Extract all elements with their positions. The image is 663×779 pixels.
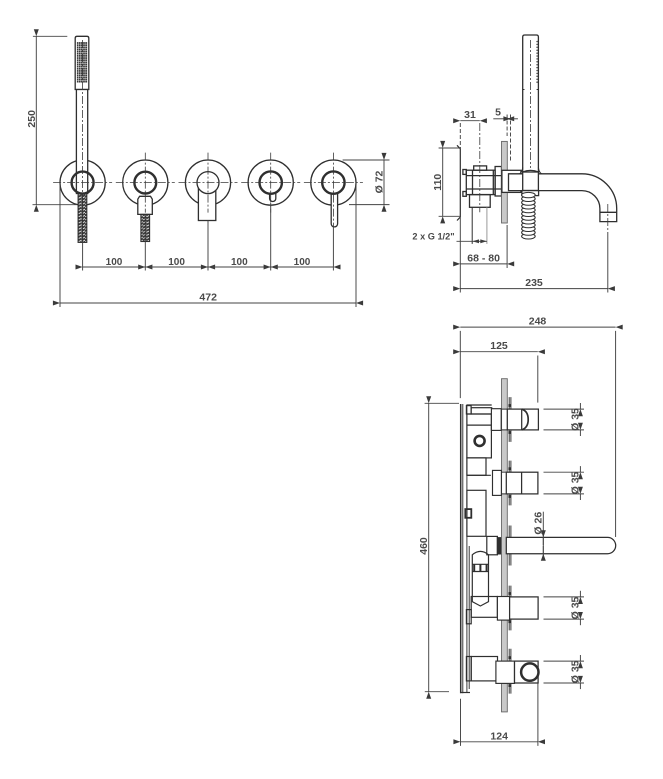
svg-text:5: 5 [495,107,501,119]
svg-text:100: 100 [231,257,248,268]
svg-text:250: 250 [26,110,38,128]
svg-text:110: 110 [432,174,444,191]
svg-text:248: 248 [529,316,547,328]
svg-text:100: 100 [294,257,311,268]
svg-text:Ø 35: Ø 35 [570,660,582,683]
svg-text:460: 460 [418,537,430,555]
svg-text:Ø 35: Ø 35 [570,596,582,619]
svg-text:100: 100 [168,257,185,268]
svg-text:472: 472 [199,292,217,304]
svg-text:Ø 26: Ø 26 [533,512,545,535]
svg-text:2 x G 1/2": 2 x G 1/2" [412,232,454,242]
svg-text:68 - 80: 68 - 80 [467,252,500,264]
svg-text:Ø 35: Ø 35 [570,471,582,494]
svg-text:Ø 72: Ø 72 [373,170,385,193]
svg-text:100: 100 [106,257,123,268]
svg-text:125: 125 [490,340,508,352]
svg-text:31: 31 [464,109,476,121]
svg-text:235: 235 [525,277,543,289]
svg-text:Ø 35: Ø 35 [570,408,582,431]
svg-text:124: 124 [490,730,508,742]
